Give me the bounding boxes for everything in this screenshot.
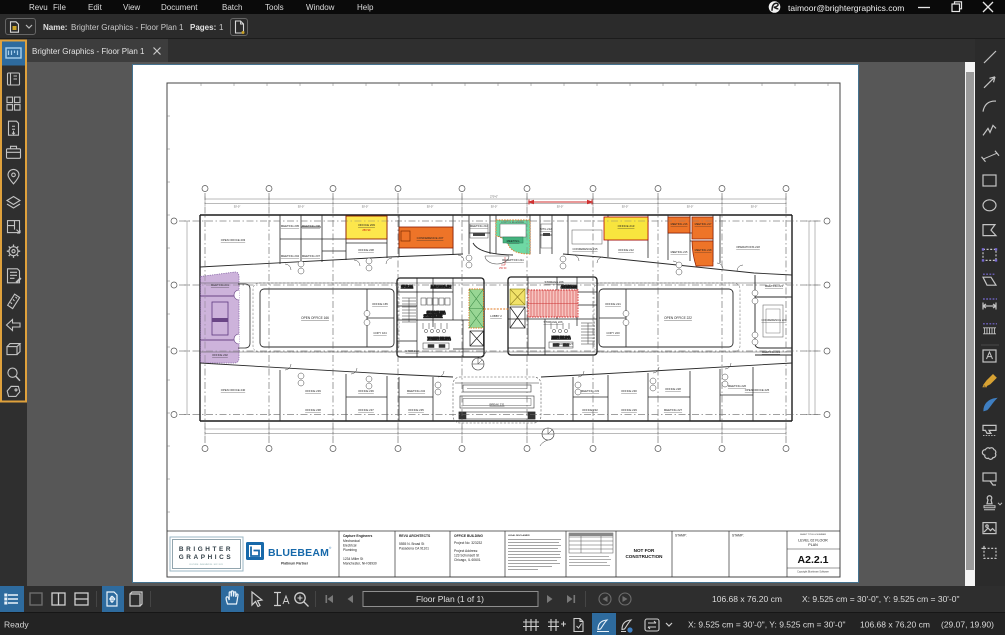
- svg-text:STORAGE 226: STORAGE 226: [543, 320, 563, 324]
- svg-text:X: 9.525 cm = 30'-0", Y: 9.525: X: 9.525 cm = 30'-0", Y: 9.525 cm = 30'-…: [802, 594, 960, 604]
- svg-text:CULTURE . INNOVATION . EST. 20: CULTURE . INNOVATION . EST. 2021: [189, 563, 224, 566]
- svg-text:OPERATIONS 218: OPERATIONS 218: [736, 245, 760, 249]
- svg-text:ARCHIVE 228: ARCHIVE 228: [561, 285, 578, 288]
- svg-text:CONFERENCE 215: CONFERENCE 215: [572, 247, 597, 251]
- svg-text:MEETING 206: MEETING 206: [302, 224, 321, 228]
- svg-text:270'-0": 270'-0": [490, 195, 498, 199]
- svg-text:30'-0": 30'-0": [298, 205, 305, 209]
- svg-text:OPEN OFFICE 222: OPEN OFFICE 222: [664, 316, 692, 320]
- svg-text:PLAN: PLAN: [808, 543, 818, 547]
- svg-text:123 Schonsett St: 123 Schonsett St: [454, 554, 479, 558]
- svg-text:106.68 x 76.20 cm: 106.68 x 76.20 cm: [712, 594, 782, 604]
- svg-text:MEETING 207: MEETING 207: [302, 254, 321, 258]
- svg-text:STAMP:: STAMP:: [732, 534, 744, 538]
- svg-text:Copyright Bluebeam Software: Copyright Bluebeam Software: [797, 571, 829, 574]
- svg-text:MEETING: MEETING: [507, 239, 520, 243]
- svg-text:OPEN OFFICE 203: OPEN OFFICE 203: [221, 238, 246, 242]
- svg-text:MEETING 205: MEETING 205: [281, 224, 300, 228]
- svg-text:OFFICE 238: OFFICE 238: [305, 408, 321, 412]
- svg-text:OFFICE 239: OFFICE 239: [305, 389, 321, 393]
- svg-text:BLUEBEAM: BLUEBEAM: [268, 547, 329, 559]
- svg-text:WOMEN'S RM 233A: WOMEN'S RM 233A: [427, 337, 450, 340]
- svg-text:OFFICE 230: OFFICE 230: [621, 389, 637, 393]
- svg-text:CONSTRUCTION: CONSTRUCTION: [625, 554, 663, 559]
- svg-text:MEETING 217: MEETING 217: [695, 222, 712, 226]
- svg-text:250 SF: 250 SF: [499, 267, 507, 270]
- svg-text:MEN'S RM 234A: MEN'S RM 234A: [552, 336, 571, 339]
- svg-text:OPEN OFFICE 225: OPEN OFFICE 225: [745, 388, 770, 392]
- svg-text:(29.07, 19.90): (29.07, 19.90): [941, 620, 994, 630]
- svg-text:OFFICE 212: OFFICE 212: [618, 248, 634, 252]
- svg-text:MTG 212: MTG 212: [540, 227, 552, 231]
- svg-text:STORAGE 226B: STORAGE 226B: [424, 315, 443, 318]
- svg-text:Mechanical: Mechanical: [343, 539, 360, 543]
- svg-text:MEETING 226: MEETING 226: [728, 384, 747, 388]
- svg-text:OFFICE 235: OFFICE 235: [408, 408, 424, 412]
- svg-text:OFFICE 237: OFFICE 237: [358, 408, 374, 412]
- svg-text:OFFICE BUILDING: OFFICE BUILDING: [454, 534, 483, 538]
- svg-text:30'-0": 30'-0": [234, 205, 241, 209]
- svg-text:SHEET TITLE & NUMBER: SHEET TITLE & NUMBER: [800, 534, 826, 536]
- svg-text:Plumbing: Plumbing: [343, 548, 357, 552]
- svg-text:Project Address:: Project Address:: [454, 549, 478, 553]
- svg-text:OFFICE 165: OFFICE 165: [372, 302, 388, 306]
- svg-text:Electrical: Electrical: [343, 544, 357, 548]
- svg-text:RECEPTION 211: RECEPTION 211: [502, 258, 524, 262]
- svg-text:STORAGE 226: STORAGE 226: [544, 280, 564, 284]
- svg-text:OFFICE 229: OFFICE 229: [621, 408, 637, 412]
- svg-text:106.68 x 76.20 cm: 106.68 x 76.20 cm: [860, 620, 930, 630]
- svg-text:MEETING 218: MEETING 218: [695, 248, 712, 252]
- svg-text:POINT OF BEGINNING: POINT OF BEGINNING: [501, 222, 524, 224]
- svg-text:MEETING 210: MEETING 210: [470, 224, 489, 228]
- svg-text:Pasadena CA 91101: Pasadena CA 91101: [399, 547, 429, 551]
- svg-text:MEETING 204: MEETING 204: [281, 254, 300, 258]
- svg-text:30'-0": 30'-0": [751, 205, 758, 209]
- svg-text:Platinum Partner: Platinum Partner: [281, 562, 309, 566]
- svg-text:OFFICE 221: OFFICE 221: [605, 302, 621, 306]
- svg-text:COPY 220: COPY 220: [606, 331, 620, 335]
- svg-text:CONFERENCE 207: CONFERENCE 207: [417, 236, 444, 240]
- svg-text:COPY 164: COPY 164: [373, 331, 387, 335]
- svg-text:OFFICE 213: OFFICE 213: [618, 224, 635, 228]
- svg-text:Chicago, IL 60601: Chicago, IL 60601: [454, 558, 481, 562]
- svg-text:OPEN OFFICE 166: OPEN OFFICE 166: [301, 316, 329, 320]
- svg-text:MEETING 215: MEETING 215: [671, 250, 688, 254]
- svg-text:WATER RM 227: WATER RM 227: [553, 342, 574, 346]
- svg-text:OFFICE 209: OFFICE 209: [358, 223, 375, 227]
- svg-text:Project No: 323232: Project No: 323232: [454, 541, 482, 545]
- svg-text:GRAPHICS: GRAPHICS: [179, 554, 234, 561]
- svg-text:OFFICE 208: OFFICE 208: [358, 248, 374, 252]
- svg-text:Capture Engineers: Capture Engineers: [343, 534, 372, 538]
- svg-text:Manchester, NH 08930: Manchester, NH 08930: [343, 562, 377, 566]
- svg-text:250 SF: 250 SF: [362, 228, 371, 232]
- svg-text:MEETING 227: MEETING 227: [664, 408, 683, 412]
- svg-text:MEETING 233: MEETING 233: [581, 389, 600, 393]
- svg-text:OFFICE 228: OFFICE 228: [665, 387, 681, 391]
- svg-text:Floor Plan (1 of 1): Floor Plan (1 of 1): [416, 594, 484, 604]
- svg-text:®: ®: [329, 546, 332, 550]
- svg-text:30'-0": 30'-0": [491, 205, 498, 209]
- svg-text:ELECTRICAL 230: ELECTRICAL 230: [431, 285, 452, 288]
- svg-text:OPEN OFFICE 240: OPEN OFFICE 240: [221, 388, 246, 392]
- svg-text:OFFICE 236: OFFICE 236: [358, 389, 374, 393]
- svg-text:OFFICE 232: OFFICE 232: [582, 408, 598, 412]
- svg-text:MEETING 234: MEETING 234: [407, 389, 426, 393]
- svg-text:5555 N. Broad St: 5555 N. Broad St: [399, 542, 424, 546]
- svg-text:X: 9.525 cm = 30'-0", Y: 9.525: X: 9.525 cm = 30'-0", Y: 9.525 cm = 30'-…: [688, 620, 846, 630]
- svg-text:LEGAL DISCLAIMER: LEGAL DISCLAIMER: [508, 534, 530, 537]
- svg-text:30'-0": 30'-0": [427, 205, 434, 209]
- svg-text:NOT FOR: NOT FOR: [634, 548, 655, 553]
- svg-text:MEETING 221: MEETING 221: [765, 284, 784, 288]
- svg-text:REVU ARCHITECTS: REVU ARCHITECTS: [399, 534, 431, 538]
- svg-text:MEETING 219: MEETING 219: [762, 350, 781, 354]
- svg-text:MEETING 216: MEETING 216: [671, 222, 688, 226]
- svg-text:Ready: Ready: [4, 620, 29, 630]
- svg-text:A2.2.1: A2.2.1: [798, 554, 829, 566]
- svg-text:BREAK 231: BREAK 231: [490, 403, 505, 407]
- svg-text:LOBBY 2: LOBBY 2: [490, 314, 502, 318]
- svg-text:30'-0": 30'-0": [622, 205, 629, 209]
- svg-text:BRIGHTER: BRIGHTER: [179, 546, 233, 553]
- svg-text:STOR 231: STOR 231: [401, 285, 413, 288]
- svg-text:LEVEL 02 FLOOR: LEVEL 02 FLOOR: [798, 539, 828, 543]
- svg-text:STAMP:: STAMP:: [675, 534, 687, 538]
- svg-text:30'-0": 30'-0": [687, 205, 694, 209]
- svg-text:30'-0": 30'-0": [557, 205, 564, 209]
- svg-text:30'-0": 30'-0": [362, 205, 369, 209]
- svg-text:OFFICE 202: OFFICE 202: [212, 353, 228, 357]
- svg-text:1234 Miller St: 1234 Miller St: [343, 557, 363, 561]
